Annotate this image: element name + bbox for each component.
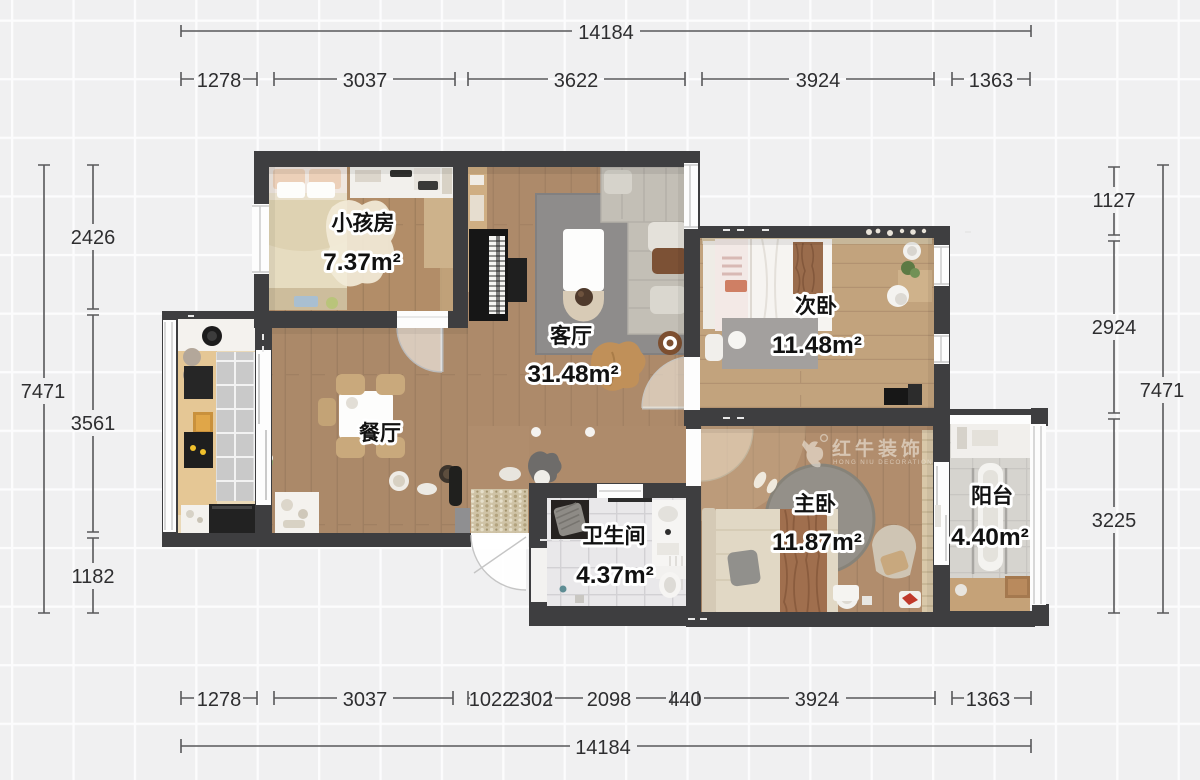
svg-text:卫生间: 卫生间 [583, 524, 646, 548]
svg-text:2098: 2098 [587, 689, 632, 711]
svg-text:次卧: 次卧 [795, 294, 837, 318]
svg-text:11.87m²: 11.87m² [772, 529, 862, 556]
svg-text:小孩房: 小孩房 [332, 211, 395, 235]
svg-text:主卧: 主卧 [794, 493, 836, 516]
svg-text:11.48m²: 11.48m² [772, 332, 862, 359]
svg-text:2924: 2924 [1092, 317, 1137, 339]
svg-text:4.40m²: 4.40m² [951, 524, 1029, 551]
svg-text:4.37m²: 4.37m² [576, 562, 654, 589]
svg-text:1363: 1363 [969, 70, 1014, 92]
svg-text:14184: 14184 [578, 22, 634, 44]
svg-text:1022: 1022 [469, 689, 514, 711]
svg-text:1127: 1127 [1092, 190, 1135, 212]
svg-text:3561: 3561 [71, 413, 116, 435]
svg-text:2302: 2302 [509, 689, 554, 711]
svg-text:3037: 3037 [343, 689, 388, 711]
svg-text:7471: 7471 [21, 381, 66, 403]
svg-text:440: 440 [668, 689, 701, 711]
svg-text:7471: 7471 [1140, 380, 1185, 402]
svg-text:餐厅: 餐厅 [359, 421, 401, 445]
svg-text:客厅: 客厅 [550, 324, 592, 348]
svg-text:1182: 1182 [71, 566, 114, 588]
svg-text:阳台: 阳台 [971, 484, 1013, 508]
svg-text:3037: 3037 [343, 70, 388, 92]
svg-text:1278: 1278 [197, 70, 242, 92]
svg-text:7.37m²: 7.37m² [323, 249, 401, 276]
svg-text:1363: 1363 [966, 689, 1011, 711]
svg-text:3225: 3225 [1092, 510, 1137, 532]
svg-text:3924: 3924 [795, 689, 840, 711]
svg-text:31.48m²: 31.48m² [527, 361, 618, 388]
svg-text:3622: 3622 [554, 70, 599, 92]
svg-text:HONG NIU DECORATION: HONG NIU DECORATION [833, 459, 933, 466]
svg-text:红牛装饰: 红牛装饰 [832, 437, 924, 460]
svg-text:3924: 3924 [796, 70, 841, 92]
svg-text:14184: 14184 [575, 737, 631, 759]
svg-text:1278: 1278 [197, 689, 242, 711]
svg-text:2426: 2426 [71, 227, 116, 249]
